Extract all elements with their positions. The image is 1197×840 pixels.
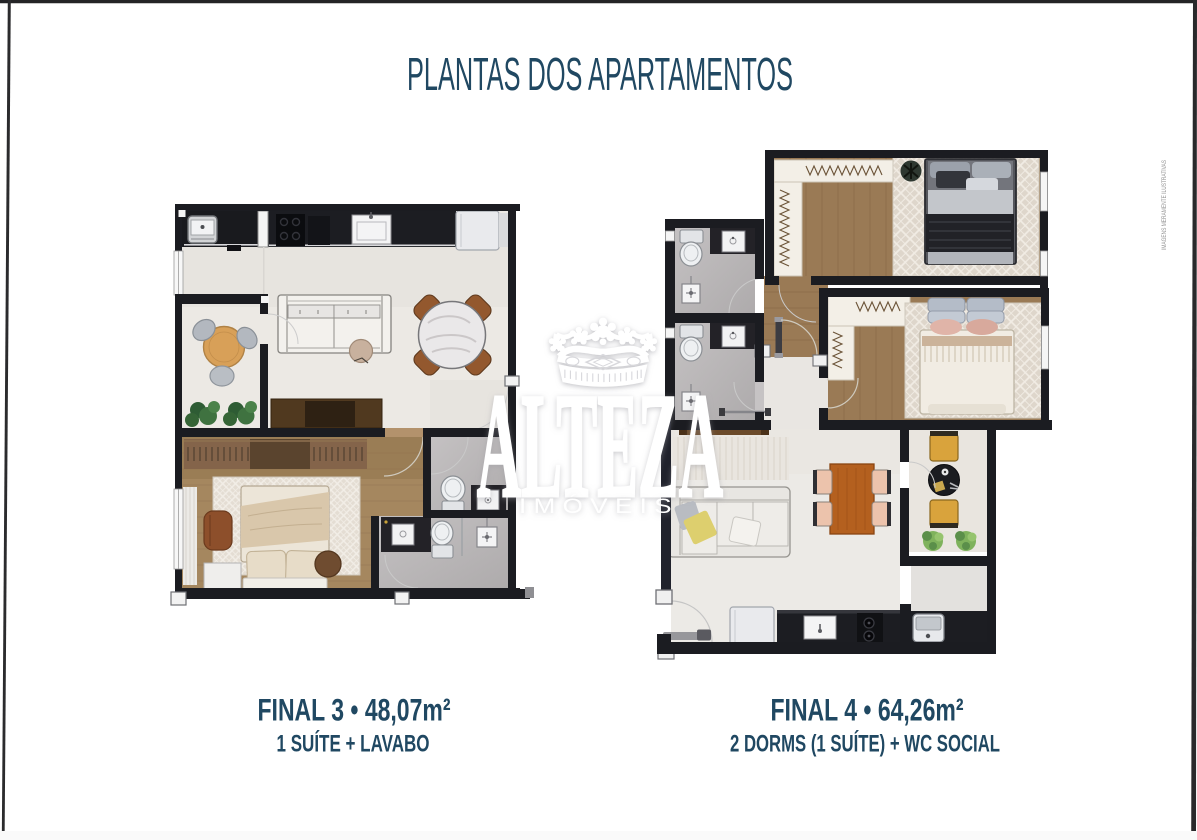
svg-text:2 DORMS (1 SUÍTE) + WC SOCIAL: 2 DORMS (1 SUÍTE) + WC SOCIAL	[730, 730, 1000, 758]
svg-text:FINAL 3 • 48,07m²: FINAL 3 • 48,07m²	[258, 692, 451, 728]
svg-text:PLANTAS DOS APARTAMENTOS: PLANTAS DOS APARTAMENTOS	[407, 48, 793, 100]
svg-text:FINAL 4 • 64,26m²: FINAL 4 • 64,26m²	[771, 692, 964, 728]
svg-text:IMAGENS MERAMENTE ILUSTRATIVAS: IMAGENS MERAMENTE ILUSTRATIVAS	[1161, 160, 1168, 250]
svg-text:1 SUÍTE + LAVABO: 1 SUÍTE + LAVABO	[277, 730, 430, 758]
